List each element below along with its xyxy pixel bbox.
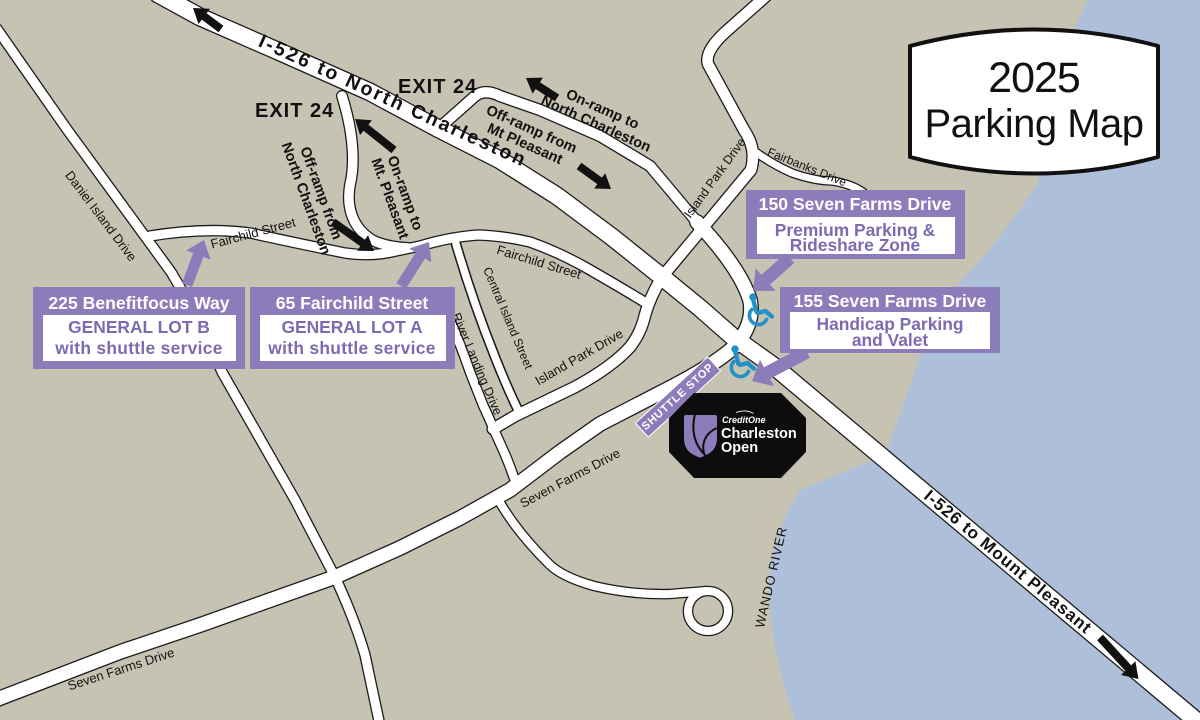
svg-text:150 Seven Farms Drive: 150 Seven Farms Drive xyxy=(759,194,952,214)
svg-text:GENERAL LOT B: GENERAL LOT B xyxy=(68,317,210,337)
svg-text:EXIT 24: EXIT 24 xyxy=(255,100,334,122)
svg-text:Rideshare Zone: Rideshare Zone xyxy=(790,235,921,255)
svg-text:2025: 2025 xyxy=(988,54,1080,102)
svg-text:Open: Open xyxy=(721,440,758,456)
svg-text:225 Benefitfocus Way: 225 Benefitfocus Way xyxy=(48,293,229,313)
svg-text:GENERAL LOT A: GENERAL LOT A xyxy=(281,317,423,337)
svg-text:155 Seven Farms Drive: 155 Seven Farms Drive xyxy=(794,291,987,311)
svg-text:EXIT 24: EXIT 24 xyxy=(398,76,477,98)
svg-text:CreditOne: CreditOne xyxy=(722,415,766,425)
svg-text:65 Fairchild Street: 65 Fairchild Street xyxy=(276,293,429,313)
svg-text:and Valet: and Valet xyxy=(852,330,929,350)
svg-text:with shuttle service: with shuttle service xyxy=(267,338,435,358)
svg-text:Parking Map: Parking Map xyxy=(924,102,1143,146)
svg-text:with shuttle service: with shuttle service xyxy=(54,338,222,358)
